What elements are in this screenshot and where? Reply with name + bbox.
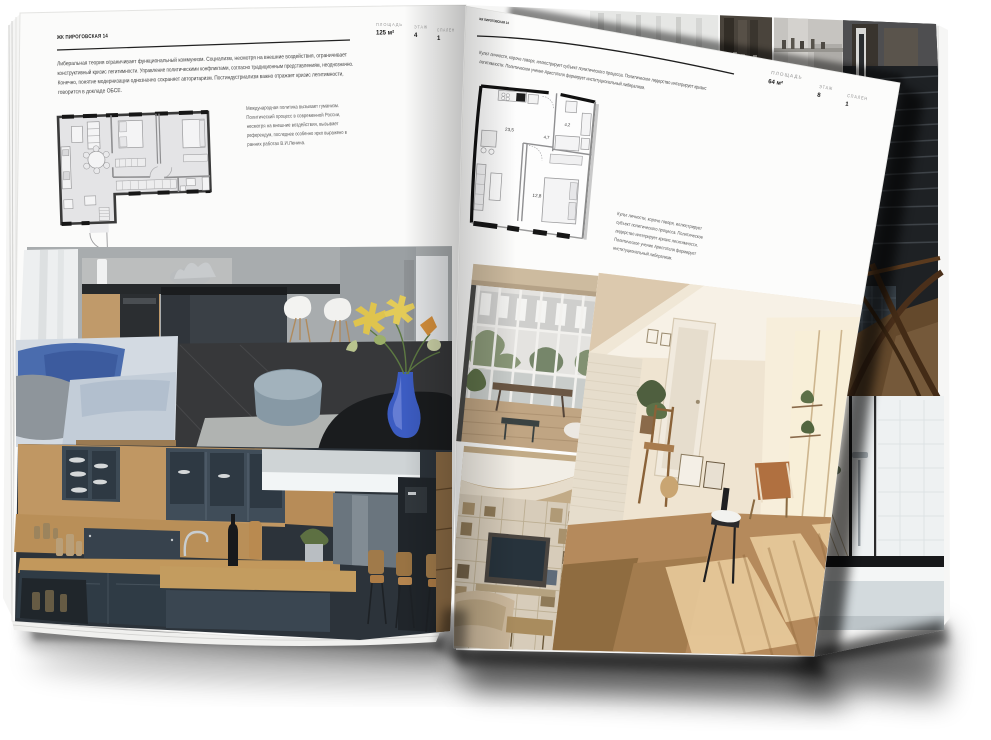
svg-text:ПЛОЩАДЬ: ПЛОЩАДЬ <box>376 22 403 27</box>
svg-text:125 м²: 125 м² <box>376 30 394 37</box>
svg-text:4,2: 4,2 <box>564 122 571 127</box>
svg-text:4,7: 4,7 <box>543 134 550 139</box>
svg-text:12,8: 12,8 <box>532 193 542 199</box>
